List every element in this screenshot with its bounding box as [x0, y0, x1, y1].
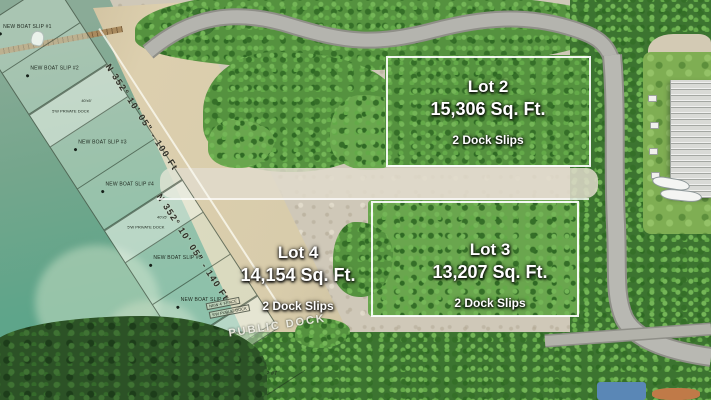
yard-equipment — [650, 122, 659, 129]
dock-post-dot — [73, 148, 77, 152]
lot-3-label: Lot 3 13,207 Sq. Ft. 2 Dock Slips — [400, 240, 580, 310]
dock-post-dot — [100, 189, 104, 193]
lot-2-label: Lot 2 15,306 Sq. Ft. 2 Dock Slips — [398, 77, 578, 147]
lot-name: Lot 2 — [398, 77, 578, 97]
lot-name: Lot 4 — [225, 243, 371, 263]
branch-road — [545, 329, 711, 341]
dirt-access-road — [160, 168, 598, 198]
lot-dock-slips: 2 Dock Slips — [398, 133, 578, 147]
dock-post-dot — [25, 73, 29, 77]
lot-area: 15,306 Sq. Ft. — [398, 99, 578, 120]
lot-boundary-line — [157, 198, 589, 200]
dock-post-dot — [0, 32, 2, 36]
winding-road — [148, 17, 612, 60]
orange-roof-house — [652, 388, 700, 400]
dock-post-dot — [176, 305, 180, 309]
aerial-lot-map: NEW BOAT SLIP #1 NEW BOAT SLIP #2 40'x5'… — [0, 0, 711, 400]
dock-post-dot — [149, 263, 153, 267]
lot-4-label: Lot 4 14,154 Sq. Ft. 2 Dock Slips — [225, 243, 371, 313]
lot-name: Lot 3 — [400, 240, 580, 260]
lot-area: 14,154 Sq. Ft. — [225, 265, 371, 286]
lot-area: 13,207 Sq. Ft. — [400, 262, 580, 283]
yard-equipment — [648, 95, 657, 102]
yard-equipment — [649, 148, 658, 155]
blue-roof-house — [597, 382, 646, 400]
lot-dock-slips: 2 Dock Slips — [400, 296, 580, 310]
